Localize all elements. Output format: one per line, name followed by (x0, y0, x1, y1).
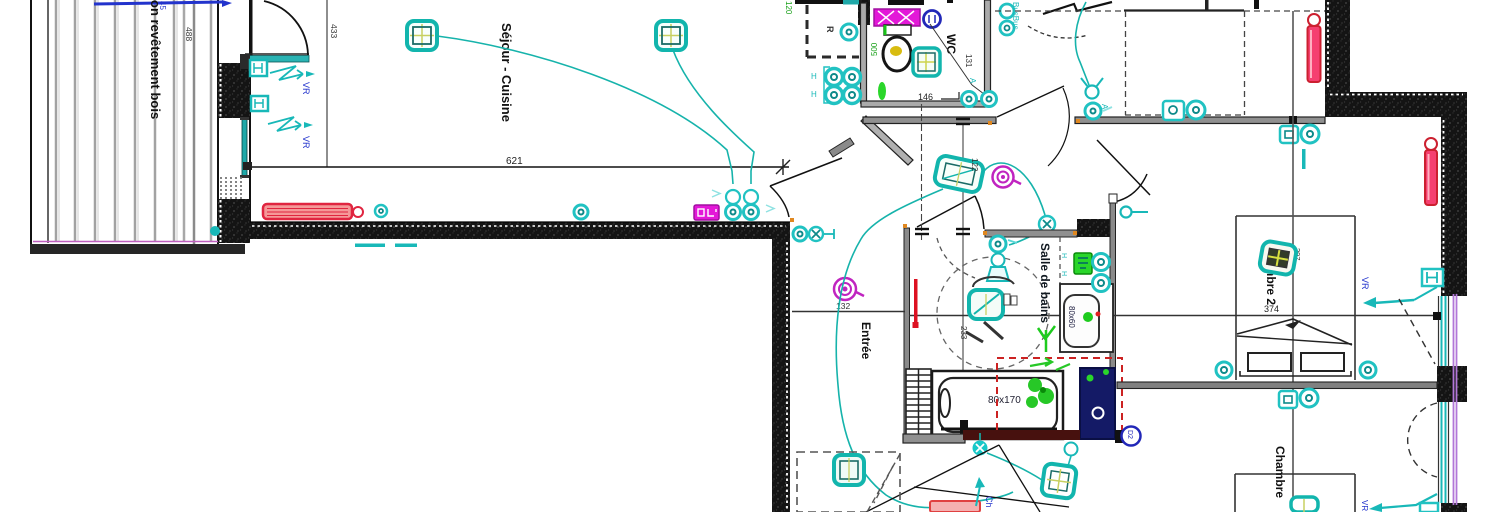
svg-text:488: 488 (184, 27, 194, 41)
svg-text:A: A (968, 78, 977, 84)
svg-text:Salle de bains: Salle de bains (1038, 243, 1052, 323)
svg-text:131: 131 (964, 54, 973, 68)
svg-text:D2: D2 (1126, 430, 1133, 439)
svg-text:120: 120 (784, 1, 793, 15)
svg-text:146: 146 (918, 92, 933, 102)
svg-text:374: 374 (1264, 304, 1279, 314)
svg-text:VR: VR (1360, 277, 1370, 290)
svg-text:45: 45 (158, 1, 167, 10)
svg-text:433: 433 (329, 24, 339, 38)
svg-text:233: 233 (959, 326, 968, 340)
svg-text:H: H (811, 72, 817, 81)
svg-text:on revêtement bois: on revêtement bois (148, 0, 163, 119)
svg-text:Chambre: Chambre (1273, 446, 1287, 498)
svg-text:Entrée: Entrée (859, 322, 873, 360)
svg-text:Séjour - Cuisine: Séjour - Cuisine (499, 23, 514, 122)
svg-text:R: R (825, 26, 835, 33)
svg-text:A: A (1100, 104, 1109, 110)
svg-text:621: 621 (506, 156, 523, 167)
svg-text:80x170: 80x170 (988, 395, 1021, 406)
svg-text:VR: VR (301, 136, 311, 149)
svg-text:500: 500 (870, 42, 879, 56)
svg-text:122: 122 (970, 158, 979, 172)
svg-text:VR: VR (301, 82, 311, 95)
svg-text:80x60: 80x60 (1067, 306, 1076, 328)
svg-text:H: H (811, 90, 817, 99)
svg-text:H: H (1060, 253, 1067, 258)
svg-text:VR: VR (1360, 500, 1369, 511)
svg-text:H: H (1060, 271, 1067, 276)
svg-text:BusBus: BusBus (1011, 2, 1020, 30)
svg-text:WC: WC (944, 34, 958, 54)
svg-text:Ch: Ch (984, 496, 994, 508)
